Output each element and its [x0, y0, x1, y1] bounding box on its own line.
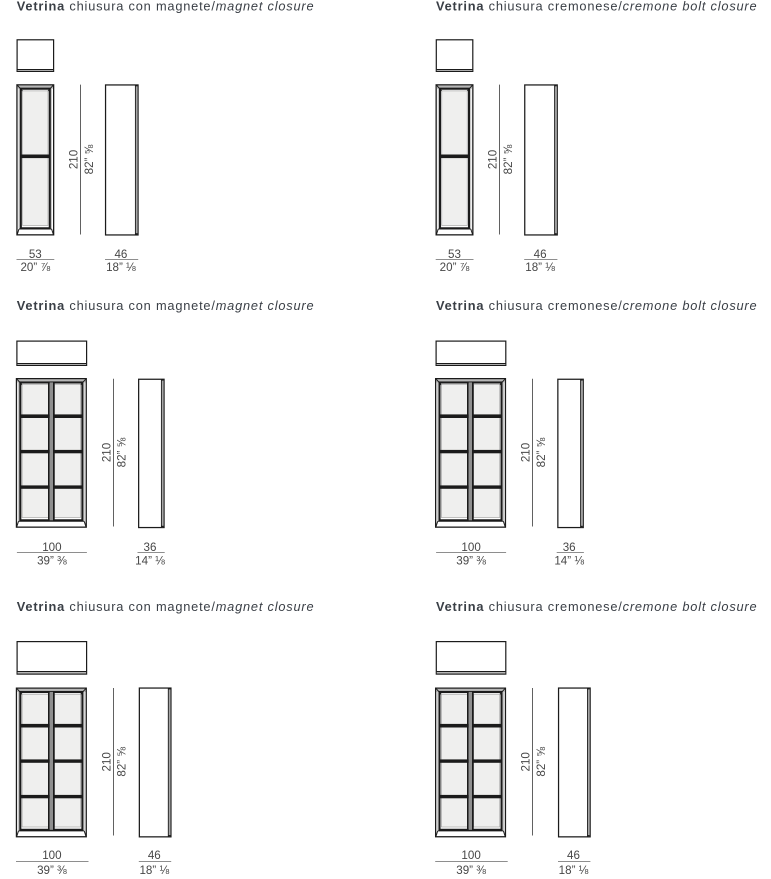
svg-text:18” ⅛: 18” ⅛ — [559, 864, 589, 877]
svg-text:210: 210 — [101, 443, 114, 462]
svg-text:46: 46 — [567, 849, 580, 862]
svg-text:210: 210 — [487, 150, 500, 169]
svg-text:39” ⅜: 39” ⅜ — [37, 864, 67, 877]
svg-text:Vetrina chiusura cremonese/cre: Vetrina chiusura cremonese/cremone bolt … — [436, 298, 757, 313]
svg-text:39” ⅜: 39” ⅜ — [37, 555, 67, 568]
svg-text:14” ⅛: 14” ⅛ — [135, 555, 165, 568]
svg-text:82” ⅝: 82” ⅝ — [116, 747, 129, 777]
svg-text:82” ⅝: 82” ⅝ — [502, 144, 515, 174]
svg-text:100: 100 — [42, 849, 61, 862]
svg-text:46: 46 — [148, 849, 161, 862]
svg-text:210: 210 — [101, 752, 114, 771]
svg-text:14” ⅛: 14” ⅛ — [554, 555, 584, 568]
svg-text:18” ⅛: 18” ⅛ — [106, 261, 136, 274]
svg-text:82” ⅝: 82” ⅝ — [83, 144, 96, 174]
svg-text:82” ⅝: 82” ⅝ — [535, 747, 548, 777]
svg-text:210: 210 — [520, 752, 533, 771]
svg-text:39” ⅜: 39” ⅜ — [456, 864, 486, 877]
svg-text:Vetrina chiusura con magnete/m: Vetrina chiusura con magnete/magnet clos… — [17, 0, 315, 13]
svg-text:Vetrina chiusura con magnete/m: Vetrina chiusura con magnete/magnet clos… — [17, 599, 315, 614]
svg-text:Vetrina chiusura cremonese/cre: Vetrina chiusura cremonese/cremone bolt … — [436, 0, 757, 13]
svg-text:18” ⅛: 18” ⅛ — [525, 261, 555, 274]
svg-text:Vetrina chiusura cremonese/cre: Vetrina chiusura cremonese/cremone bolt … — [436, 599, 757, 614]
svg-text:210: 210 — [67, 150, 80, 169]
svg-text:Vetrina chiusura con magnete/m: Vetrina chiusura con magnete/magnet clos… — [17, 298, 315, 313]
svg-text:82” ⅝: 82” ⅝ — [116, 437, 129, 467]
svg-text:82” ⅝: 82” ⅝ — [535, 437, 548, 467]
svg-text:20” ⅞: 20” ⅞ — [440, 261, 470, 274]
svg-text:20” ⅞: 20” ⅞ — [20, 261, 50, 274]
svg-text:210: 210 — [520, 443, 533, 462]
svg-text:18” ⅛: 18” ⅛ — [139, 864, 169, 877]
svg-text:39” ⅜: 39” ⅜ — [456, 555, 486, 568]
svg-text:100: 100 — [461, 849, 480, 862]
